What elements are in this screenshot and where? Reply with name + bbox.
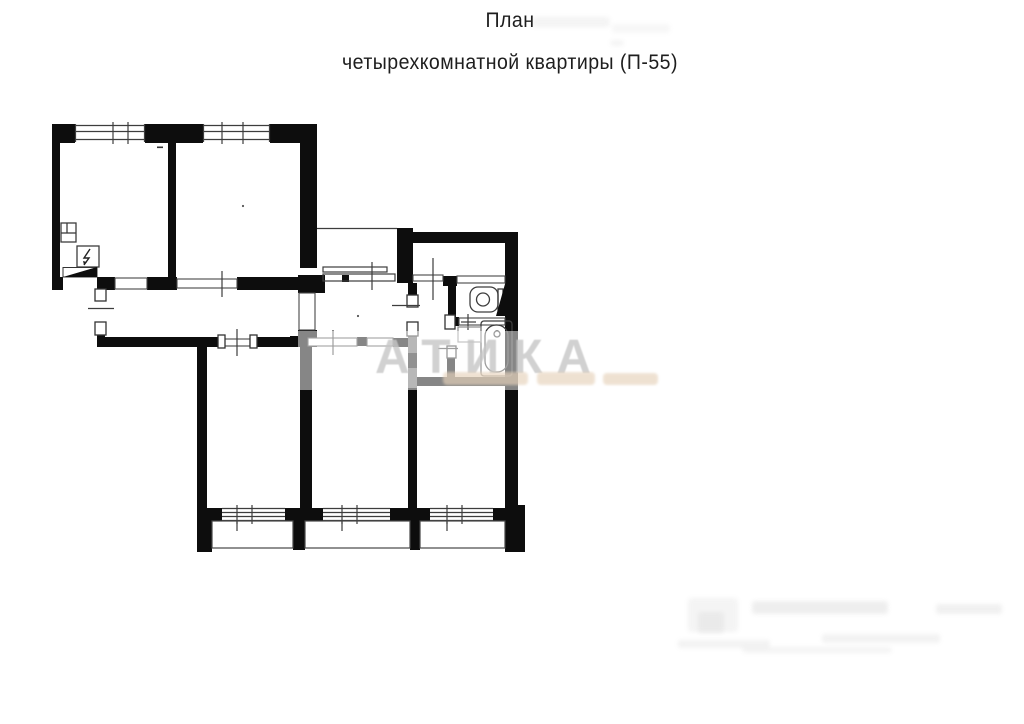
faint-smudge: [698, 612, 724, 634]
watermark-subtext-smudge: [443, 372, 658, 385]
room2-door-opening: [177, 279, 237, 288]
balconies: [212, 521, 505, 548]
kitchen-door-leaf: [63, 267, 97, 277]
floor-plan-page: План четырехкомнатной квартиры (П-55): [0, 0, 1024, 724]
room4-window: [323, 505, 390, 531]
faint-smudge: [936, 604, 1002, 614]
floor-plan-drawing: АТИКА: [0, 0, 1024, 724]
kitchen-door-opening: [115, 278, 147, 289]
corridor-passage-opening: [299, 293, 315, 330]
toilet-symbol: [470, 287, 503, 312]
room5-window: [430, 505, 493, 531]
wc-door-opening: [413, 275, 443, 281]
niche-lines: [317, 229, 397, 291]
faint-smudge: [822, 634, 940, 643]
balcony-3: [420, 521, 505, 548]
wc-front-wall: [457, 276, 505, 283]
balcony-2: [305, 521, 410, 548]
watermark: АТИКА: [298, 331, 666, 390]
room3-window: [222, 505, 285, 531]
kitchen-window: [75, 122, 145, 144]
faint-smudge: [742, 647, 892, 653]
kitchen-sink-symbol: [61, 223, 76, 242]
electric-stove-symbol: [77, 246, 99, 267]
faint-smudge: [752, 601, 888, 614]
balcony-1: [212, 521, 293, 548]
room2-window: [203, 122, 270, 144]
